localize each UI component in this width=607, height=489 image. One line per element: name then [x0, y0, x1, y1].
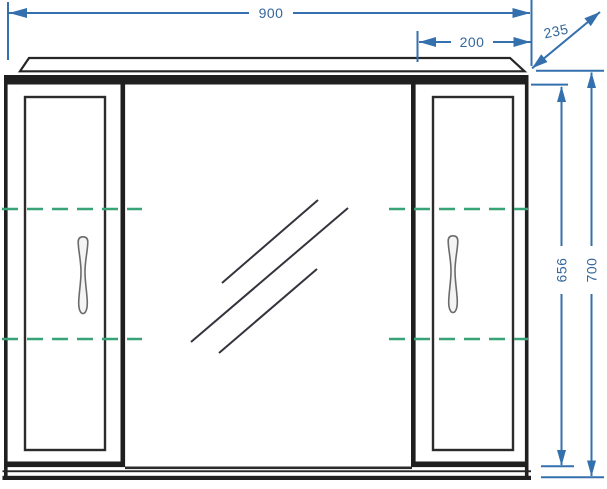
arrowhead-down-icon	[587, 461, 596, 477]
dimension-label-656: 656	[554, 258, 570, 283]
left-side-edge	[4, 75, 8, 480]
dimension-label-900: 900	[259, 5, 284, 21]
base-board-bottom-line	[3, 476, 532, 480]
right-section-bottom	[411, 462, 529, 468]
arrowhead-left-icon	[419, 37, 436, 47]
cabinet-technical-drawing: 900 200 235 656 700	[0, 0, 607, 489]
mirror-hatch-line	[222, 200, 318, 283]
mirror-hatch-line	[219, 269, 317, 353]
dimension-carcass-height: 656	[531, 85, 574, 467]
dimension-overall-width: 900	[8, 0, 532, 66]
mirror-glass-hatch	[191, 200, 348, 353]
dimension-label-200: 200	[460, 34, 485, 50]
top-rail	[4, 75, 529, 85]
arrowhead-down-icon	[557, 450, 566, 466]
arrowhead-right-icon	[514, 37, 531, 47]
right-door	[433, 97, 513, 450]
arrowhead-up-icon	[587, 72, 596, 88]
mirror-section-bottom	[125, 467, 412, 470]
mirror-hatch-line	[191, 208, 348, 342]
dimension-label-700: 700	[584, 258, 600, 283]
dimension-label-235: 235	[542, 21, 570, 42]
arrowhead-up-icon	[557, 86, 566, 102]
right-section-divider	[411, 84, 416, 467]
left-section-divider	[121, 84, 126, 467]
left-section-bottom	[4, 462, 125, 468]
left-door	[25, 97, 105, 450]
rotated-label-group: 700	[583, 246, 601, 294]
right-side-edge	[525, 75, 529, 480]
crown-top-board	[20, 58, 525, 71]
dimension-depth: 235	[532, 12, 600, 68]
right-door-handle	[448, 236, 458, 313]
technical-drawing-page: 900 200 235 656 700	[0, 0, 607, 489]
arrowhead-right-icon	[513, 8, 531, 18]
arrowhead-left-icon	[9, 8, 27, 18]
base-board-top-line	[3, 470, 532, 472]
rotated-label-group: 656	[553, 246, 571, 294]
left-door-handle	[78, 237, 88, 314]
